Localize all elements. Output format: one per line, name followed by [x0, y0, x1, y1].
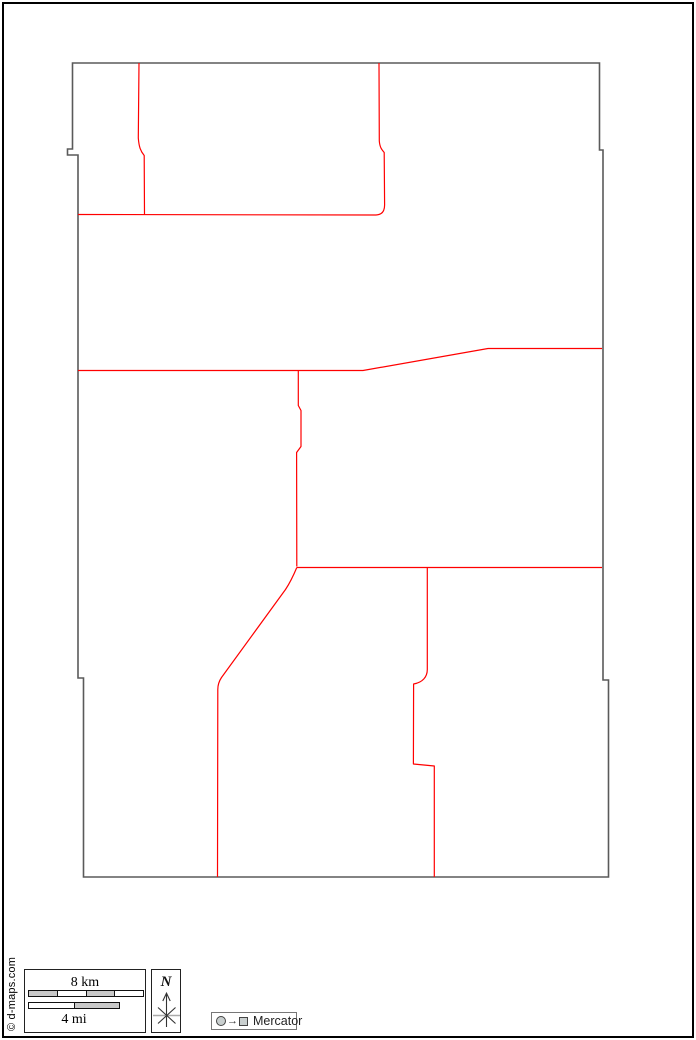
map-square-icon — [239, 1017, 248, 1026]
boundary-southwest-diagonal — [218, 568, 297, 878]
scale-km-label: 8 km — [25, 976, 145, 990]
boundary-northwest-vertical — [138, 63, 144, 215]
projection-label: Mercator — [253, 1014, 302, 1028]
projection-box: → Mercator — [211, 1012, 297, 1030]
north-label: N — [152, 974, 180, 990]
mi-segment-2 — [74, 1003, 120, 1008]
km-segment-4 — [114, 991, 143, 996]
map-svg — [0, 0, 696, 1040]
north-compass-icon — [152, 990, 181, 1030]
km-segment-3 — [86, 991, 115, 996]
north-box: N — [151, 969, 181, 1033]
globe-circle-icon — [216, 1016, 226, 1026]
scale-mi-label: 4 mi — [28, 1013, 120, 1027]
km-segment-2 — [57, 991, 86, 996]
scale-box: 8 km 4 mi — [24, 969, 146, 1033]
copyright-text: © d-maps.com — [6, 957, 18, 1031]
boundary-southeast-vertical — [413, 568, 434, 878]
boundary-north-central-vertical — [376, 63, 385, 215]
arrow-right-icon: → — [227, 1016, 238, 1026]
km-segment-1 — [29, 991, 57, 996]
scale-mi-bar — [28, 1002, 120, 1009]
boundary-north-horizontal — [78, 215, 376, 216]
page: { "frame": { "border_color": "#000000" }… — [0, 0, 696, 1040]
boundary-central-vertical — [297, 371, 301, 567]
scale-km-bar — [28, 990, 144, 997]
map-outline — [68, 63, 609, 877]
mi-segment-1 — [29, 1003, 74, 1008]
boundary-central-horizontal — [78, 349, 602, 371]
